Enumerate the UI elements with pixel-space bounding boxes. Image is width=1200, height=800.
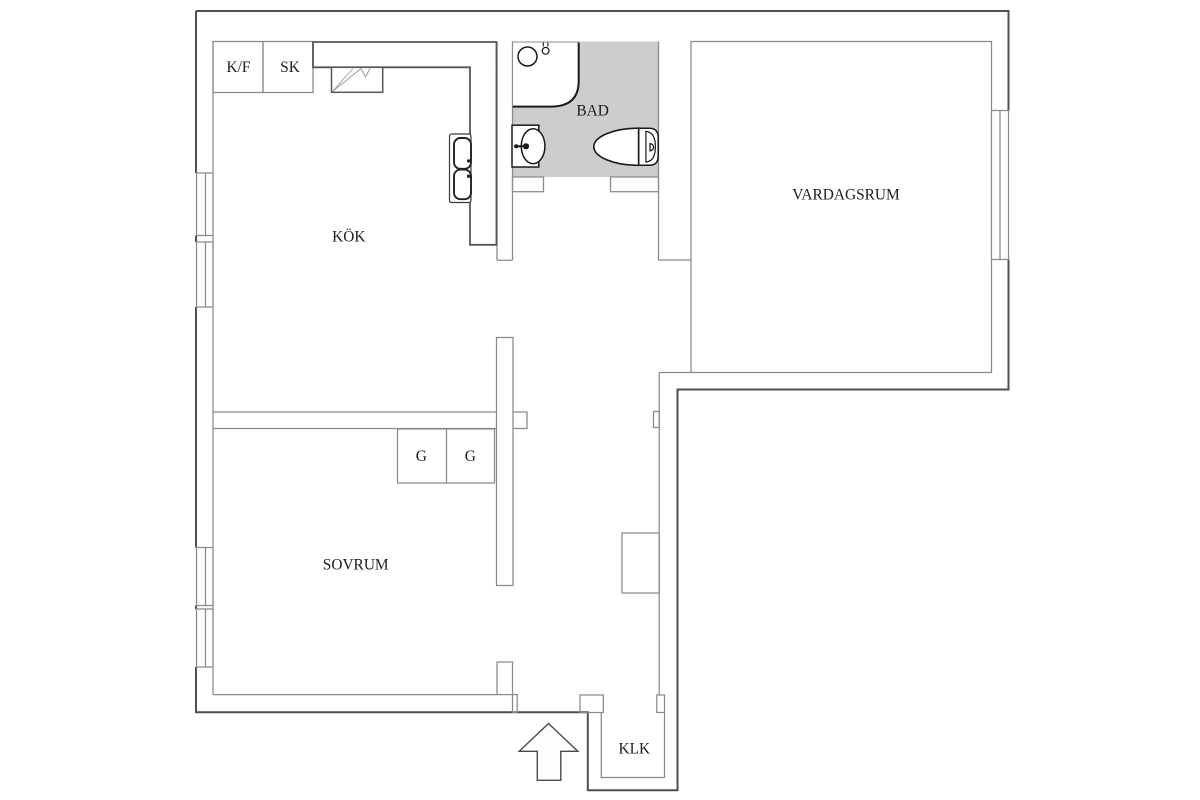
svg-text:BAD: BAD [576, 102, 609, 119]
svg-text:SK: SK [280, 59, 300, 76]
svg-text:VARDAGSRUM: VARDAGSRUM [792, 187, 900, 204]
svg-text:K/F: K/F [227, 59, 251, 76]
svg-text:KLK: KLK [618, 740, 650, 757]
svg-text:SOVRUM: SOVRUM [323, 557, 389, 574]
svg-text:KÖK: KÖK [332, 228, 365, 245]
svg-text:G: G [465, 448, 476, 465]
svg-text:G: G [416, 448, 427, 465]
